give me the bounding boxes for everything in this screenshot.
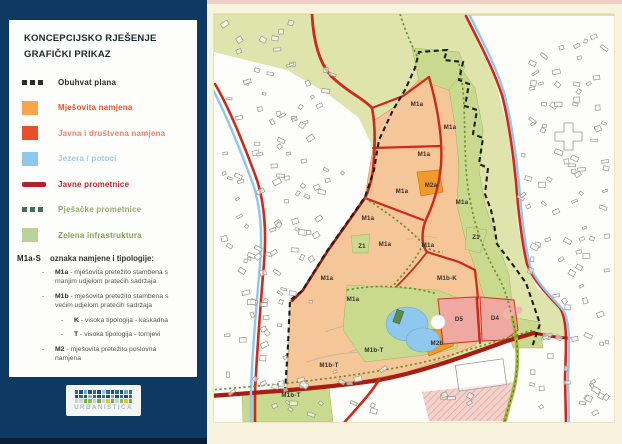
legend-item-label: Javne prometnice xyxy=(58,180,129,189)
legend-card: KONCEPCIJSKO RJEŠENJE GRAFIČKI PRIKAZ Ob… xyxy=(9,20,197,377)
zone-label-m1a: M1a xyxy=(422,242,435,249)
logo-text: URBANISTICA xyxy=(74,404,133,411)
legend-item-label: Javna i društvena namjena xyxy=(58,129,165,138)
square-swatch-icon xyxy=(17,101,47,115)
typology-heading: M1a-Soznaka namjene i tipologije: xyxy=(17,254,189,263)
legend-item-jezera-potoci: Jezera / potoci xyxy=(17,152,189,166)
document-title: KONCEPCIJSKO RJEŠENJE GRAFIČKI PRIKAZ xyxy=(24,31,189,62)
legend-item-javna-i-drustvena-namjena: Javna i društvena namjena xyxy=(17,126,189,140)
title-line-1: KONCEPCIJSKO RJEŠENJE xyxy=(24,31,189,47)
zone-label-m1a: M1a xyxy=(396,188,409,195)
zone-label-m1b-k: M1b-K xyxy=(437,275,457,282)
zone-label-m2b: M2b xyxy=(431,340,444,347)
zone-label-m1a: M1a xyxy=(321,275,334,282)
zone-label-m1b-t: M1b-T xyxy=(281,392,300,399)
zone-label-z1: Z1 xyxy=(358,243,366,250)
zone-label-m1a: M1a xyxy=(456,199,469,206)
typology-entry-k: -K - visoka tipologija - kaskadna xyxy=(61,316,181,326)
zone-label-d4: D4 xyxy=(491,315,500,322)
typology-code: M1a-S xyxy=(17,254,41,263)
typology-entry-m1b: -M1b - mješovita pretežito stambena s ve… xyxy=(42,292,184,311)
legend-item-pjesacke-prometnice: Pješačke prometnice xyxy=(17,203,189,217)
zone-label-m1a: M1a xyxy=(418,151,431,158)
legend-panel: KONCEPCIJSKO RJEŠENJE GRAFIČKI PRIKAZ Ob… xyxy=(0,0,207,444)
scanned-plan-document: KONCEPCIJSKO RJEŠENJE GRAFIČKI PRIKAZ Ob… xyxy=(0,0,622,444)
typology-legend: M1a-Soznaka namjene i tipologije: -M1a -… xyxy=(17,254,189,364)
typology-heading-text: oznaka namjene i tipologije: xyxy=(50,254,154,263)
typology-entries: -M1a - mješovita pretežito stambena s ma… xyxy=(17,268,189,364)
legend-item-label: Zelena infrastruktura xyxy=(58,231,142,240)
typology-entry-m1a: -M1a - mješovita pretežito stambena s ma… xyxy=(42,268,184,287)
zone-label-d5: D5 xyxy=(455,316,464,323)
zone-label-m1b-t: M1b-T xyxy=(319,362,338,369)
zone-label-m1a: M1a xyxy=(347,296,360,303)
logo-mosaic-icon xyxy=(75,390,133,403)
typology-entry-m2: -M2 - mješovita pretežito poslovna namje… xyxy=(42,345,184,364)
legend-item-javne-prometnice: Javne prometnice xyxy=(17,177,189,191)
scan-edge xyxy=(207,0,622,4)
map-page: M1aM1aM1aM1aM2aM1aM1aM1aZ1M1aZ1M1aM1b-KM… xyxy=(207,0,622,444)
dashes-swatch-icon xyxy=(17,80,47,85)
legend-item-label: Mješovita namjena xyxy=(58,103,133,112)
legend-item-label: Obuhvat plana xyxy=(58,78,116,87)
zone-label-m1a: M1a xyxy=(362,215,375,222)
zone-label-z1: Z1 xyxy=(472,234,480,241)
square-swatch-icon xyxy=(17,126,47,140)
zone-label-m1b-t: M1b-T xyxy=(364,347,383,354)
zone-label-m2a: M2a xyxy=(425,182,438,189)
urbanistica-logo: URBANISTICA xyxy=(66,385,141,416)
zone-label-m1a: M1a xyxy=(411,101,424,108)
zoning-map: M1aM1aM1aM1aM2aM1aM1aM1aZ1M1aZ1M1aM1b-KM… xyxy=(207,0,622,444)
square-swatch-icon xyxy=(17,228,47,242)
legend-item-mjesovita-namjena: Mješovita namjena xyxy=(17,101,189,115)
map-feature-circle-white xyxy=(431,315,445,329)
legend-item-obuhvat-plana: Obuhvat plana xyxy=(17,75,189,89)
legend-item-label: Pješačke prometnice xyxy=(58,205,141,214)
legend-items: Obuhvat planaMješovita namjenaJavna i dr… xyxy=(17,75,189,242)
square-swatch-icon xyxy=(17,152,47,166)
line-swatch-icon xyxy=(17,182,47,187)
legend-item-label: Jezera / potoci xyxy=(58,154,117,163)
dashes-swatch-icon xyxy=(17,207,47,212)
title-line-2: GRAFIČKI PRIKAZ xyxy=(24,47,189,63)
legend-item-zelena-infrastruktura: Zelena infrastruktura xyxy=(17,228,189,242)
zone-label-m1a: M1a xyxy=(379,241,392,248)
zone-label-m1a: M1a xyxy=(444,124,457,131)
typology-entry-t: -T - visoka tipologija - tornjevi xyxy=(61,330,181,340)
map-feature-circle-pink2 xyxy=(516,307,523,314)
